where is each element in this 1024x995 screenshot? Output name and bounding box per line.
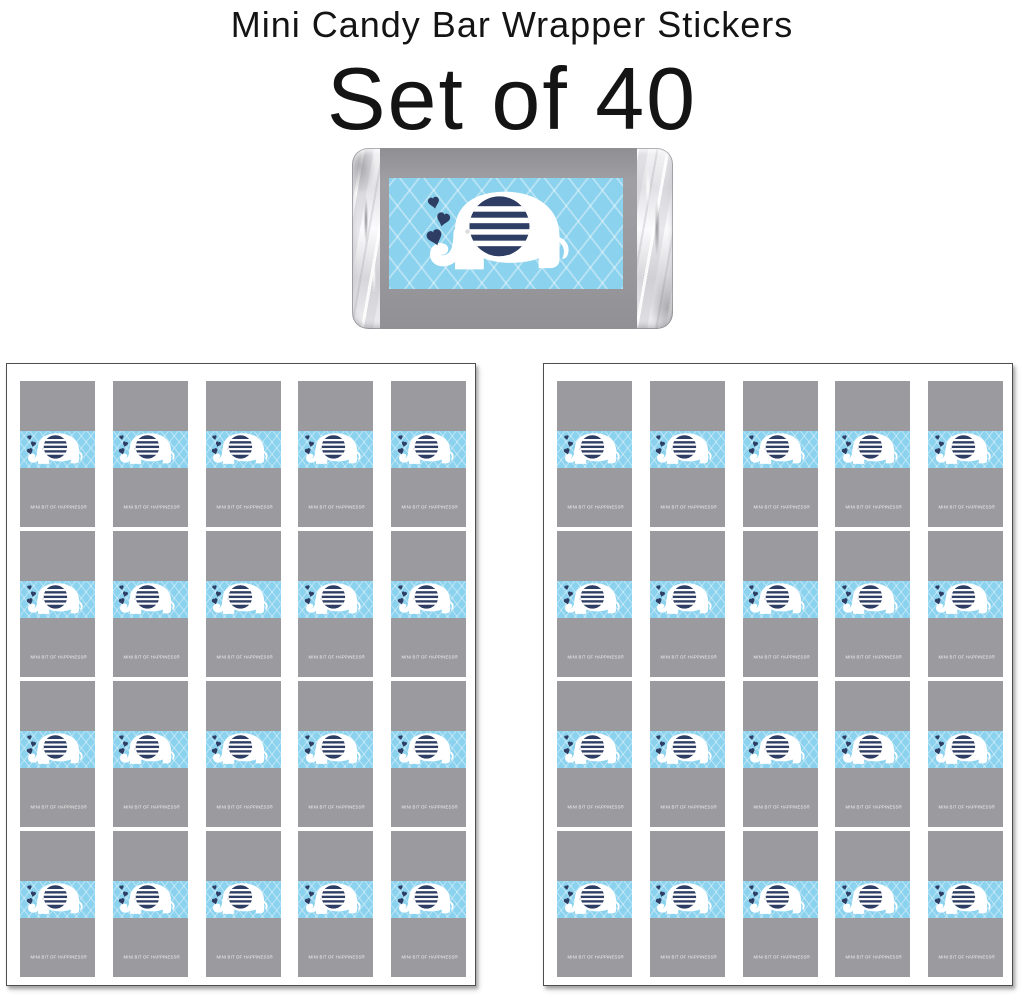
wrapper-label	[389, 178, 623, 289]
elephant-with-heart-spray-icon	[839, 882, 907, 918]
sticker-top-flap	[835, 381, 910, 431]
elephant-with-heart-spray-icon	[561, 732, 629, 768]
elephant-with-heart-spray-icon	[746, 732, 814, 768]
mini-wrapper-sticker: MINI BIT OF HAPPINESS®	[557, 531, 632, 677]
elephant-with-heart-spray-icon	[116, 732, 184, 768]
mini-wrapper-sticker: MINI BIT OF HAPPINESS®	[391, 681, 466, 827]
elephant-with-heart-spray-icon	[653, 732, 721, 768]
mini-wrapper-sticker: MINI BIT OF HAPPINESS®	[20, 531, 95, 677]
sticker-top-flap	[650, 381, 725, 431]
sticker-sheet-left: MINI BIT OF HAPPINESS® MINI BIT OF HAPPI…	[6, 363, 476, 986]
elephant-with-heart-spray-icon	[302, 732, 370, 768]
mini-wrapper-sticker: MINI BIT OF HAPPINESS®	[650, 681, 725, 827]
sticker-top-flap	[206, 381, 281, 431]
elephant-with-heart-spray-icon	[395, 432, 463, 468]
sticker-top-flap	[20, 681, 95, 731]
sticker-top-flap	[20, 531, 95, 581]
sticker-row: MINI BIT OF HAPPINESS® MINI BIT OF HAPPI…	[557, 381, 1003, 527]
sticker-elephant-band	[743, 881, 818, 918]
mini-wrapper-sticker: MINI BIT OF HAPPINESS®	[835, 381, 910, 527]
sticker-back-panel: MINI BIT OF HAPPINESS®	[113, 918, 188, 977]
sticker-elephant-band	[20, 731, 95, 768]
sticker-top-flap	[928, 831, 1003, 881]
sticker-back-panel: MINI BIT OF HAPPINESS®	[298, 618, 373, 677]
sticker-top-flap	[298, 681, 373, 731]
sticker-top-flap	[20, 831, 95, 881]
mini-wrapper-sticker: MINI BIT OF HAPPINESS®	[928, 381, 1003, 527]
mini-wrapper-sticker: MINI BIT OF HAPPINESS®	[557, 831, 632, 977]
sticker-top-flap	[298, 381, 373, 431]
elephant-with-heart-spray-icon	[932, 582, 1000, 618]
wrapper-back-text: MINI BIT OF HAPPINESS®	[30, 806, 84, 810]
set-count-label: Set of 40	[0, 48, 1024, 150]
elephant-with-heart-spray-icon	[746, 882, 814, 918]
sticker-back-panel: MINI BIT OF HAPPINESS®	[743, 468, 818, 527]
sticker-back-panel: MINI BIT OF HAPPINESS®	[743, 768, 818, 827]
sticker-top-flap	[650, 531, 725, 581]
sticker-back-panel: MINI BIT OF HAPPINESS®	[650, 768, 725, 827]
sticker-top-flap	[557, 831, 632, 881]
elephant-with-heart-spray-icon	[116, 432, 184, 468]
sticker-top-flap	[557, 381, 632, 431]
wrapper-back-text: MINI BIT OF HAPPINESS®	[216, 806, 270, 810]
sticker-back-panel: MINI BIT OF HAPPINESS®	[835, 468, 910, 527]
sticker-grid: MINI BIT OF HAPPINESS® MINI BIT OF HAPPI…	[20, 381, 466, 978]
wrapper-back-text: MINI BIT OF HAPPINESS®	[123, 506, 177, 510]
wrapper-back-text: MINI BIT OF HAPPINESS®	[753, 656, 807, 660]
sticker-row: MINI BIT OF HAPPINESS® MINI BIT OF HAPPI…	[20, 531, 466, 677]
sticker-top-flap	[743, 681, 818, 731]
wrapper-back-text: MINI BIT OF HAPPINESS®	[846, 956, 900, 960]
page-title: Mini Candy Bar Wrapper Stickers	[0, 4, 1024, 46]
wrapper-back-text: MINI BIT OF HAPPINESS®	[30, 506, 84, 510]
sticker-row: MINI BIT OF HAPPINESS® MINI BIT OF HAPPI…	[557, 681, 1003, 827]
wrapper-back-text: MINI BIT OF HAPPINESS®	[402, 656, 456, 660]
sticker-elephant-band	[391, 731, 466, 768]
sticker-elephant-band	[743, 431, 818, 468]
mini-wrapper-sticker: MINI BIT OF HAPPINESS®	[113, 681, 188, 827]
sticker-back-panel: MINI BIT OF HAPPINESS®	[20, 918, 95, 977]
sticker-back-panel: MINI BIT OF HAPPINESS®	[650, 918, 725, 977]
elephant-with-heart-spray-icon	[389, 178, 623, 289]
wrapper-back-text: MINI BIT OF HAPPINESS®	[309, 806, 363, 810]
sticker-top-flap	[391, 381, 466, 431]
elephant-with-heart-spray-icon	[116, 882, 184, 918]
sticker-back-panel: MINI BIT OF HAPPINESS®	[298, 468, 373, 527]
sticker-top-flap	[391, 681, 466, 731]
wrapper-back-text: MINI BIT OF HAPPINESS®	[402, 956, 456, 960]
elephant-with-heart-spray-icon	[932, 432, 1000, 468]
wrapper-back-text: MINI BIT OF HAPPINESS®	[939, 656, 993, 660]
sticker-top-flap	[835, 531, 910, 581]
sticker-back-panel: MINI BIT OF HAPPINESS®	[650, 618, 725, 677]
sticker-top-flap	[113, 531, 188, 581]
sticker-back-panel: MINI BIT OF HAPPINESS®	[928, 768, 1003, 827]
sticker-elephant-band	[650, 881, 725, 918]
sticker-elephant-band	[206, 431, 281, 468]
elephant-with-heart-spray-icon	[302, 582, 370, 618]
wrapper-back-text: MINI BIT OF HAPPINESS®	[939, 956, 993, 960]
sticker-back-panel: MINI BIT OF HAPPINESS®	[928, 468, 1003, 527]
sticker-back-panel: MINI BIT OF HAPPINESS®	[557, 918, 632, 977]
sticker-elephant-band	[206, 581, 281, 618]
wrapper-back-text: MINI BIT OF HAPPINESS®	[30, 656, 84, 660]
sticker-elephant-band	[113, 881, 188, 918]
elephant-with-heart-spray-icon	[24, 582, 92, 618]
sticker-back-panel: MINI BIT OF HAPPINESS®	[206, 618, 281, 677]
sticker-elephant-band	[298, 881, 373, 918]
wrapper-back-text: MINI BIT OF HAPPINESS®	[568, 506, 622, 510]
elephant-with-heart-spray-icon	[302, 432, 370, 468]
sticker-top-flap	[928, 681, 1003, 731]
sticker-elephant-band	[835, 581, 910, 618]
mini-wrapper-sticker: MINI BIT OF HAPPINESS®	[391, 531, 466, 677]
sticker-elephant-band	[650, 581, 725, 618]
elephant-with-heart-spray-icon	[24, 882, 92, 918]
mini-wrapper-sticker: MINI BIT OF HAPPINESS®	[557, 381, 632, 527]
sticker-back-panel: MINI BIT OF HAPPINESS®	[743, 618, 818, 677]
wrapper-back-text: MINI BIT OF HAPPINESS®	[753, 506, 807, 510]
sticker-back-panel: MINI BIT OF HAPPINESS®	[206, 468, 281, 527]
wrapper-back-text: MINI BIT OF HAPPINESS®	[123, 956, 177, 960]
wrapper-back-text: MINI BIT OF HAPPINESS®	[939, 806, 993, 810]
wrapper-back-text: MINI BIT OF HAPPINESS®	[402, 806, 456, 810]
sticker-top-flap	[557, 531, 632, 581]
sticker-elephant-band	[557, 581, 632, 618]
mini-wrapper-sticker: MINI BIT OF HAPPINESS®	[206, 531, 281, 677]
elephant-with-heart-spray-icon	[302, 882, 370, 918]
sticker-elephant-band	[391, 581, 466, 618]
elephant-with-heart-spray-icon	[839, 732, 907, 768]
elephant-with-heart-spray-icon	[395, 582, 463, 618]
sticker-top-flap	[113, 381, 188, 431]
sticker-elephant-band	[20, 431, 95, 468]
sticker-back-panel: MINI BIT OF HAPPINESS®	[928, 618, 1003, 677]
sticker-top-flap	[20, 381, 95, 431]
sticker-top-flap	[113, 681, 188, 731]
elephant-with-heart-spray-icon	[209, 732, 277, 768]
sticker-back-panel: MINI BIT OF HAPPINESS®	[298, 918, 373, 977]
sticker-elephant-band	[557, 881, 632, 918]
wrapper-back-text: MINI BIT OF HAPPINESS®	[846, 506, 900, 510]
wrapper-back-text: MINI BIT OF HAPPINESS®	[846, 806, 900, 810]
mini-wrapper-sticker: MINI BIT OF HAPPINESS®	[835, 831, 910, 977]
wrapper-back-text: MINI BIT OF HAPPINESS®	[660, 506, 714, 510]
sticker-top-flap	[928, 381, 1003, 431]
sticker-top-flap	[650, 681, 725, 731]
sticker-elephant-band	[298, 581, 373, 618]
wrapper-back-text: MINI BIT OF HAPPINESS®	[939, 506, 993, 510]
sticker-back-panel: MINI BIT OF HAPPINESS®	[206, 768, 281, 827]
mini-wrapper-sticker: MINI BIT OF HAPPINESS®	[743, 531, 818, 677]
sticker-elephant-band	[391, 431, 466, 468]
elephant-with-heart-spray-icon	[932, 732, 1000, 768]
mini-wrapper-sticker: MINI BIT OF HAPPINESS®	[298, 681, 373, 827]
elephant-with-heart-spray-icon	[395, 732, 463, 768]
sticker-top-flap	[928, 531, 1003, 581]
wrapper-band	[380, 148, 637, 329]
sticker-back-panel: MINI BIT OF HAPPINESS®	[113, 618, 188, 677]
sticker-row: MINI BIT OF HAPPINESS® MINI BIT OF HAPPI…	[20, 681, 466, 827]
mini-wrapper-sticker: MINI BIT OF HAPPINESS®	[650, 381, 725, 527]
candy-bar-photo	[352, 148, 673, 329]
elephant-with-heart-spray-icon	[746, 432, 814, 468]
wrapper-back-text: MINI BIT OF HAPPINESS®	[402, 506, 456, 510]
mini-wrapper-sticker: MINI BIT OF HAPPINESS®	[206, 381, 281, 527]
elephant-with-heart-spray-icon	[116, 582, 184, 618]
sticker-elephant-band	[743, 581, 818, 618]
mini-wrapper-sticker: MINI BIT OF HAPPINESS®	[743, 381, 818, 527]
mini-wrapper-sticker: MINI BIT OF HAPPINESS®	[20, 831, 95, 977]
mini-wrapper-sticker: MINI BIT OF HAPPINESS®	[113, 831, 188, 977]
sticker-elephant-band	[835, 731, 910, 768]
mini-wrapper-sticker: MINI BIT OF HAPPINESS®	[206, 831, 281, 977]
elephant-with-heart-spray-icon	[209, 582, 277, 618]
sticker-elephant-band	[206, 731, 281, 768]
sticker-back-panel: MINI BIT OF HAPPINESS®	[391, 918, 466, 977]
sticker-top-flap	[113, 831, 188, 881]
sticker-elephant-band	[298, 431, 373, 468]
sticker-elephant-band	[928, 581, 1003, 618]
wrapper-back-text: MINI BIT OF HAPPINESS®	[216, 656, 270, 660]
sticker-back-panel: MINI BIT OF HAPPINESS®	[835, 918, 910, 977]
sticker-top-flap	[298, 531, 373, 581]
mini-wrapper-sticker: MINI BIT OF HAPPINESS®	[650, 831, 725, 977]
sticker-row: MINI BIT OF HAPPINESS® MINI BIT OF HAPPI…	[20, 381, 466, 527]
sticker-back-panel: MINI BIT OF HAPPINESS®	[20, 468, 95, 527]
mini-wrapper-sticker: MINI BIT OF HAPPINESS®	[928, 531, 1003, 677]
sticker-elephant-band	[20, 581, 95, 618]
wrapper-back-text: MINI BIT OF HAPPINESS®	[216, 956, 270, 960]
sticker-top-flap	[743, 381, 818, 431]
sticker-elephant-band	[743, 731, 818, 768]
sticker-back-panel: MINI BIT OF HAPPINESS®	[557, 468, 632, 527]
sticker-elephant-band	[557, 731, 632, 768]
sticker-back-panel: MINI BIT OF HAPPINESS®	[20, 768, 95, 827]
sticker-top-flap	[557, 681, 632, 731]
sticker-back-panel: MINI BIT OF HAPPINESS®	[928, 918, 1003, 977]
mini-wrapper-sticker: MINI BIT OF HAPPINESS®	[113, 381, 188, 527]
wrapper-back-text: MINI BIT OF HAPPINESS®	[216, 506, 270, 510]
sticker-elephant-band	[928, 431, 1003, 468]
sticker-back-panel: MINI BIT OF HAPPINESS®	[20, 618, 95, 677]
sticker-back-panel: MINI BIT OF HAPPINESS®	[557, 768, 632, 827]
wrapper-back-text: MINI BIT OF HAPPINESS®	[753, 956, 807, 960]
sticker-elephant-band	[113, 731, 188, 768]
sticker-row: MINI BIT OF HAPPINESS® MINI BIT OF HAPPI…	[20, 831, 466, 977]
elephant-with-heart-spray-icon	[24, 432, 92, 468]
sticker-elephant-band	[928, 881, 1003, 918]
wrapper-back-text: MINI BIT OF HAPPINESS®	[568, 806, 622, 810]
product-image-page: Mini Candy Bar Wrapper Stickers Set of 4…	[0, 0, 1024, 995]
sticker-elephant-band	[206, 881, 281, 918]
elephant-with-heart-spray-icon	[561, 432, 629, 468]
sticker-back-panel: MINI BIT OF HAPPINESS®	[113, 468, 188, 527]
wrapper-back-text: MINI BIT OF HAPPINESS®	[660, 656, 714, 660]
wrapper-back-text: MINI BIT OF HAPPINESS®	[846, 656, 900, 660]
wrapper-back-text: MINI BIT OF HAPPINESS®	[309, 506, 363, 510]
elephant-with-heart-spray-icon	[395, 882, 463, 918]
sticker-top-flap	[835, 831, 910, 881]
sticker-elephant-band	[557, 431, 632, 468]
mini-wrapper-sticker: MINI BIT OF HAPPINESS®	[650, 531, 725, 677]
sticker-back-panel: MINI BIT OF HAPPINESS®	[113, 768, 188, 827]
mini-wrapper-sticker: MINI BIT OF HAPPINESS®	[113, 531, 188, 677]
wrapper-back-text: MINI BIT OF HAPPINESS®	[753, 806, 807, 810]
sticker-back-panel: MINI BIT OF HAPPINESS®	[557, 618, 632, 677]
wrapper-back-text: MINI BIT OF HAPPINESS®	[123, 656, 177, 660]
mini-wrapper-sticker: MINI BIT OF HAPPINESS®	[928, 831, 1003, 977]
mini-wrapper-sticker: MINI BIT OF HAPPINESS®	[298, 381, 373, 527]
sticker-top-flap	[298, 831, 373, 881]
wrapper-back-text: MINI BIT OF HAPPINESS®	[660, 806, 714, 810]
sticker-elephant-band	[650, 731, 725, 768]
mini-wrapper-sticker: MINI BIT OF HAPPINESS®	[928, 681, 1003, 827]
sticker-back-panel: MINI BIT OF HAPPINESS®	[391, 768, 466, 827]
mini-wrapper-sticker: MINI BIT OF HAPPINESS®	[835, 681, 910, 827]
mini-wrapper-sticker: MINI BIT OF HAPPINESS®	[298, 531, 373, 677]
mini-wrapper-sticker: MINI BIT OF HAPPINESS®	[391, 381, 466, 527]
sticker-elephant-band	[650, 431, 725, 468]
sticker-elephant-band	[391, 881, 466, 918]
mini-wrapper-sticker: MINI BIT OF HAPPINESS®	[743, 681, 818, 827]
elephant-with-heart-spray-icon	[839, 432, 907, 468]
sticker-top-flap	[391, 831, 466, 881]
sticker-elephant-band	[113, 431, 188, 468]
sticker-back-panel: MINI BIT OF HAPPINESS®	[206, 918, 281, 977]
elephant-with-heart-spray-icon	[653, 882, 721, 918]
sticker-back-panel: MINI BIT OF HAPPINESS®	[391, 468, 466, 527]
sticker-top-flap	[835, 681, 910, 731]
sticker-back-panel: MINI BIT OF HAPPINESS®	[391, 618, 466, 677]
sticker-elephant-band	[835, 881, 910, 918]
elephant-with-heart-spray-icon	[839, 582, 907, 618]
sticker-top-flap	[650, 831, 725, 881]
mini-wrapper-sticker: MINI BIT OF HAPPINESS®	[298, 831, 373, 977]
mini-wrapper-sticker: MINI BIT OF HAPPINESS®	[206, 681, 281, 827]
sticker-back-panel: MINI BIT OF HAPPINESS®	[835, 618, 910, 677]
sticker-elephant-band	[298, 731, 373, 768]
wrapper-back-text: MINI BIT OF HAPPINESS®	[568, 656, 622, 660]
sticker-top-flap	[391, 531, 466, 581]
wrapper-back-text: MINI BIT OF HAPPINESS®	[309, 656, 363, 660]
sticker-back-panel: MINI BIT OF HAPPINESS®	[835, 768, 910, 827]
sticker-top-flap	[206, 831, 281, 881]
sticker-back-panel: MINI BIT OF HAPPINESS®	[743, 918, 818, 977]
sticker-row: MINI BIT OF HAPPINESS® MINI BIT OF HAPPI…	[557, 531, 1003, 677]
wrapper-back-text: MINI BIT OF HAPPINESS®	[309, 956, 363, 960]
sticker-sheet-right: MINI BIT OF HAPPINESS® MINI BIT OF HAPPI…	[543, 363, 1013, 986]
wrapper-back-text: MINI BIT OF HAPPINESS®	[123, 806, 177, 810]
wrapper-back-text: MINI BIT OF HAPPINESS®	[568, 956, 622, 960]
wrapper-back-text: MINI BIT OF HAPPINESS®	[660, 956, 714, 960]
wrapper-back-text: MINI BIT OF HAPPINESS®	[30, 956, 84, 960]
elephant-with-heart-spray-icon	[653, 432, 721, 468]
sticker-elephant-band	[928, 731, 1003, 768]
sticker-top-flap	[743, 531, 818, 581]
elephant-with-heart-spray-icon	[561, 582, 629, 618]
elephant-with-heart-spray-icon	[209, 882, 277, 918]
mini-wrapper-sticker: MINI BIT OF HAPPINESS®	[20, 381, 95, 527]
sticker-top-flap	[206, 531, 281, 581]
elephant-with-heart-spray-icon	[561, 882, 629, 918]
elephant-with-heart-spray-icon	[209, 432, 277, 468]
sticker-elephant-band	[835, 431, 910, 468]
sticker-grid: MINI BIT OF HAPPINESS® MINI BIT OF HAPPI…	[557, 381, 1003, 978]
sticker-elephant-band	[20, 881, 95, 918]
elephant-with-heart-spray-icon	[24, 732, 92, 768]
sticker-row: MINI BIT OF HAPPINESS® MINI BIT OF HAPPI…	[557, 831, 1003, 977]
sticker-top-flap	[743, 831, 818, 881]
mini-wrapper-sticker: MINI BIT OF HAPPINESS®	[20, 681, 95, 827]
sticker-back-panel: MINI BIT OF HAPPINESS®	[650, 468, 725, 527]
elephant-with-heart-spray-icon	[746, 582, 814, 618]
elephant-with-heart-spray-icon	[932, 882, 1000, 918]
sticker-elephant-band	[113, 581, 188, 618]
mini-wrapper-sticker: MINI BIT OF HAPPINESS®	[557, 681, 632, 827]
elephant-with-heart-spray-icon	[653, 582, 721, 618]
mini-wrapper-sticker: MINI BIT OF HAPPINESS®	[391, 831, 466, 977]
mini-wrapper-sticker: MINI BIT OF HAPPINESS®	[835, 531, 910, 677]
sticker-top-flap	[206, 681, 281, 731]
sticker-back-panel: MINI BIT OF HAPPINESS®	[298, 768, 373, 827]
mini-wrapper-sticker: MINI BIT OF HAPPINESS®	[743, 831, 818, 977]
